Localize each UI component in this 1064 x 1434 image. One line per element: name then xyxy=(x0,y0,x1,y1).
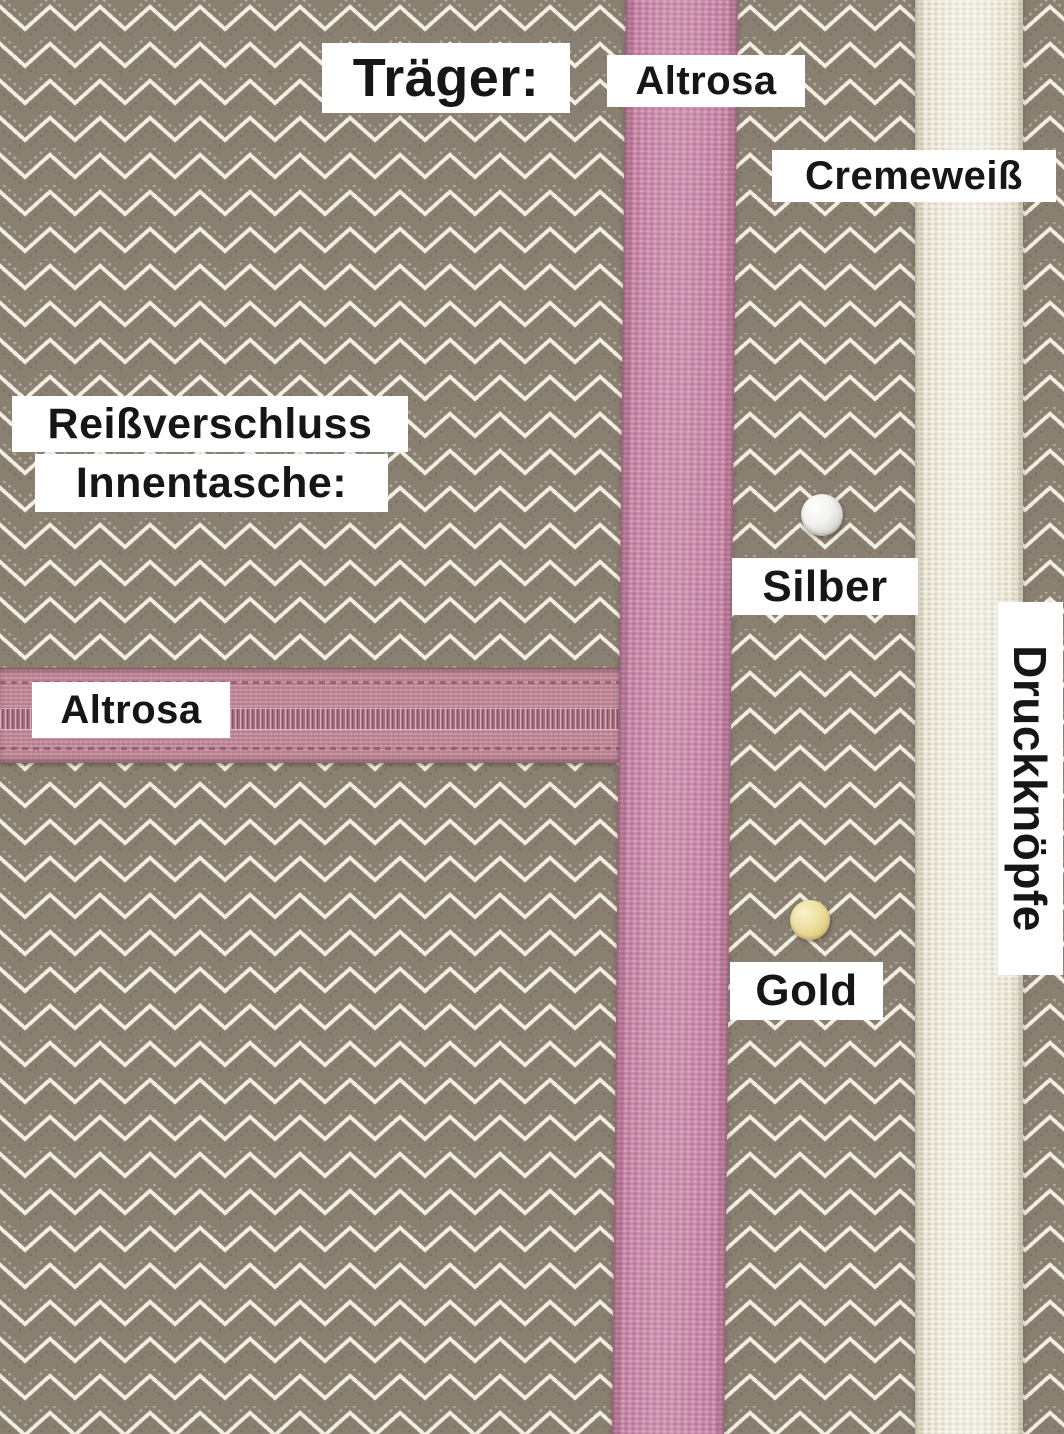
strap-altrosa-label: Altrosa xyxy=(607,55,805,107)
straps-heading-label: Träger: xyxy=(322,43,570,113)
zipper-heading-label-line2: Innentasche: xyxy=(35,454,388,512)
fabric-options-photo: Träger: Altrosa Cremeweiß Reißverschluss… xyxy=(0,0,1064,1434)
zipper-altrosa-label: Altrosa xyxy=(32,682,230,738)
snaps-heading-label: Druckknöpfe xyxy=(998,602,1063,975)
snap-gold-label: Gold xyxy=(730,962,883,1020)
strap-cremeweiss-label: Cremeweiß xyxy=(772,150,1056,202)
snap-silver-label: Silber xyxy=(732,558,918,615)
zipper-stitch-bottom xyxy=(0,747,648,750)
snap-button-silver xyxy=(801,494,843,536)
zipper-heading-label-line1: Reißverschluss xyxy=(12,396,408,452)
strap-altrosa xyxy=(612,0,738,1434)
snap-button-gold xyxy=(790,900,830,940)
